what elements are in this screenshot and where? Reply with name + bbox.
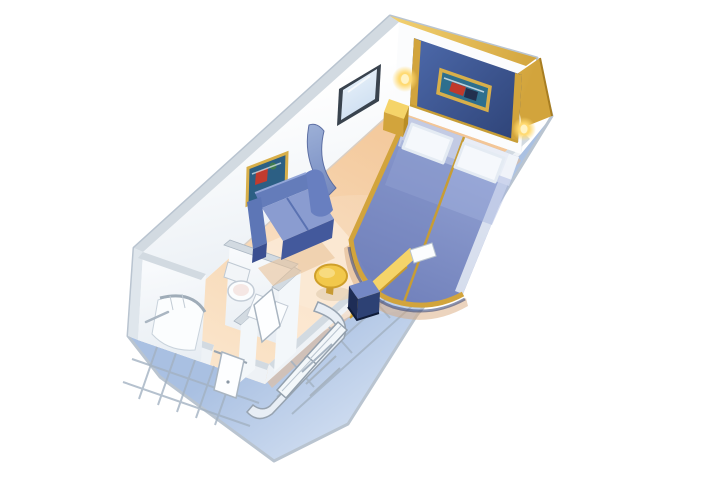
- door-handle-icon: [226, 380, 229, 383]
- sconce-lamp-icon: [401, 74, 409, 84]
- stateroom-rendering: Isometric cutaway rendering of a cruise …: [0, 0, 726, 478]
- toilet-seat: [233, 284, 249, 296]
- desk-stool: [348, 279, 380, 320]
- sconce-lamp-icon: [521, 125, 528, 134]
- nightstand: [383, 99, 409, 137]
- shower: [152, 294, 205, 350]
- table-highlight: [319, 268, 335, 278]
- table-shadow: [316, 287, 352, 301]
- stateroom-floorplan-image: Isometric cutaway rendering of a cruise …: [0, 0, 726, 478]
